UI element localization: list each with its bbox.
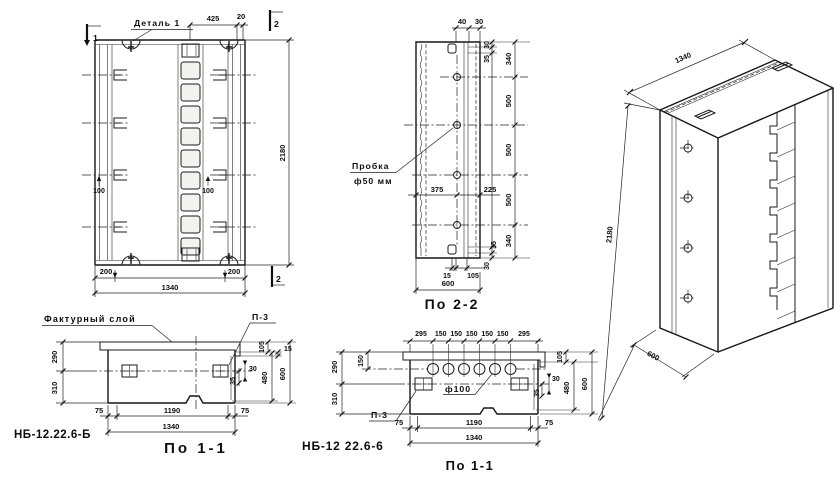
section-1-1-left-view: Фактурный слой П-3 290 310 105 15 30 35 … — [14, 312, 296, 457]
p3-label-left: П-3 — [252, 312, 269, 322]
plug-callout: Пробка ф50 мм — [350, 128, 453, 186]
p3-callout-mid: П-3 — [369, 391, 416, 421]
p3-label-mid: П-3 — [371, 410, 388, 420]
dim-150-4-label: 150 — [481, 331, 493, 338]
iso-plugs — [680, 140, 696, 306]
front-view: 100 100 Деталь 1 425 20 1 2 2 — [82, 10, 294, 297]
sec11M-bottom-dims: 75 1190 75 1340 — [395, 416, 553, 447]
dim-35r-top-label: 35 — [484, 55, 491, 63]
dim-35M-label: 35 — [534, 389, 541, 397]
iso-dims: 1340 2180 600 — [598, 39, 775, 421]
dim-500-1-label: 500 — [504, 95, 513, 108]
blueprint-page: 100 100 Деталь 1 425 20 1 2 2 — [0, 0, 834, 490]
dim-310M-label: 310 — [330, 393, 339, 406]
dim-clamp-left-label: 100 — [93, 188, 105, 195]
iso-dim-1340-label: 1340 — [674, 50, 693, 65]
sec11M-left-dims: 290 150 310 — [330, 350, 410, 417]
iso-serrated-groove — [770, 105, 795, 323]
sec11L-left-dims: 290 310 — [50, 340, 108, 406]
dim-1340M-label: 1340 — [466, 433, 483, 442]
section-mark-1-label: 1 — [93, 33, 99, 43]
embed-plate-left — [122, 365, 137, 377]
dim-30L-label: 30 — [249, 366, 257, 373]
front-bottom-dims: 200 200 1340 — [93, 265, 248, 297]
dim-75M-left-label: 75 — [395, 418, 403, 427]
dim-35L-label: 35 — [230, 377, 237, 385]
dim-600L-label: 600 — [278, 368, 287, 381]
embed-plate-right — [213, 365, 228, 377]
dim-1340-label: 1340 — [162, 283, 179, 292]
section-mark-2-top-label: 2 — [274, 19, 280, 29]
iso-dim-2180-label: 2180 — [604, 226, 614, 243]
void-ladder — [178, 45, 203, 261]
hole-diameter-label: ф100 — [445, 384, 471, 394]
dim-35r-bottom-label: 35 — [491, 241, 498, 249]
dim-1190L-label: 1190 — [164, 406, 180, 415]
embed-plate-left-mid — [415, 378, 432, 390]
sec11L-body — [88, 336, 252, 410]
dim-150-1-label: 150 — [435, 331, 447, 338]
sec11L-bottom-dims: 75 1190 75 1340 — [95, 405, 249, 436]
dim-105L-label: 105 — [259, 341, 266, 353]
dim-500-2-label: 500 — [504, 144, 513, 157]
sec11M-top-dims: 295 150 150 150 150 150 295 — [403, 331, 543, 352]
dim-1190M-label: 1190 — [466, 418, 482, 427]
dim-75M-right-label: 75 — [545, 418, 553, 427]
p3-callout-left: П-3 — [229, 312, 276, 365]
sec11M-right-dims: 105 30 35 480 600 — [534, 350, 598, 417]
plug-label-line1: Пробка — [352, 161, 389, 171]
dim-480L-label: 480 — [260, 372, 269, 385]
dim-225-label: 225 — [484, 185, 497, 194]
dim-30-top-label: 30 — [475, 17, 483, 26]
dim-105b-label: 105 — [467, 273, 479, 280]
dim-150-3-label: 150 — [466, 331, 478, 338]
dim-340-bottom-label: 340 — [504, 235, 513, 248]
front-top-dims: 425 20 — [188, 12, 249, 40]
dim-30M-label: 30 — [552, 376, 560, 383]
section-2-2-caption: По 2-2 — [425, 296, 480, 312]
dim-40-label: 40 — [458, 17, 466, 26]
front-height-dim: 2180 — [245, 38, 294, 268]
designation-left: НБ-12.22.6-Б — [14, 429, 91, 441]
facade-layer-label: Фактурный слой — [44, 314, 136, 324]
dim-clamp-right-label: 100 — [202, 188, 214, 195]
facade-layer-callout: Фактурный слой — [42, 314, 172, 342]
iso-dim-600-label: 600 — [646, 349, 661, 363]
sec11M-body — [362, 344, 552, 414]
dim-600-label: 600 — [442, 279, 455, 288]
section-mark-2-bottom-label: 2 — [276, 274, 282, 284]
dim-30r-bottom-label: 30 — [484, 262, 491, 270]
dim-600M-label: 600 — [580, 378, 589, 391]
section-mark-1: 1 — [84, 24, 101, 46]
dim-15L-label: 15 — [284, 346, 292, 353]
dim-2180-label: 2180 — [278, 145, 287, 162]
plug-label-line2: ф50 мм — [354, 176, 393, 186]
section-mark-2-top: 2 — [270, 10, 283, 31]
dim-75L-left-label: 75 — [95, 406, 103, 415]
section-2-2-view: Пробка ф50 мм 40 30 30 35 340 500 500 50… — [350, 17, 530, 312]
dim-150M-label: 150 — [358, 355, 365, 367]
detail-1-label: Деталь 1 — [134, 18, 180, 28]
section-1-1-left-caption: По 1-1 — [164, 440, 228, 457]
dim-425-label: 425 — [207, 14, 220, 23]
embed-plate-right-mid — [511, 378, 528, 390]
section-mark-2-bottom: 2 — [272, 266, 285, 287]
lifting-loops — [122, 40, 238, 265]
clamp-anchors: 100 100 — [82, 70, 258, 232]
dim-30r-top-label: 30 — [484, 41, 491, 49]
dim-1340L-label: 1340 — [163, 422, 180, 431]
dim-290M-label: 290 — [330, 361, 339, 374]
panel-outline — [95, 40, 245, 265]
dim-375-label: 375 — [431, 185, 444, 194]
section-1-1-mid-caption: По 1-1 — [446, 458, 495, 473]
section-1-1-mid-view: 295 150 150 150 150 150 295 ф100 П-3 290… — [302, 331, 598, 473]
dim-105M-label: 105 — [557, 351, 564, 363]
dim-200-right-label: 200 — [228, 267, 241, 276]
dim-150-5-label: 150 — [497, 331, 509, 338]
dim-310L-label: 310 — [50, 382, 59, 395]
top-slot — [182, 44, 199, 57]
dim-295-right-label: 295 — [518, 331, 530, 338]
dim-75L-right-label: 75 — [241, 406, 249, 415]
section-2-2-right-dims: 30 35 340 500 500 500 340 35 30 — [468, 40, 530, 270]
dim-150-2-label: 150 — [450, 331, 462, 338]
designation-mid: НБ-12 22.6-6 — [302, 439, 384, 453]
dim-20-label: 20 — [237, 12, 245, 21]
dim-480M-label: 480 — [562, 382, 571, 395]
section-2-2-bottom-dims: 15 105 600 По 2-2 — [414, 258, 485, 312]
iso-panel — [660, 60, 833, 352]
isometric-view: 1340 2180 600 — [598, 39, 833, 421]
section-2-2-top-dims: 40 30 — [452, 17, 486, 42]
dim-500-3-label: 500 — [504, 194, 513, 207]
dim-295-left-label: 295 — [415, 331, 427, 338]
technical-drawing-canvas: 100 100 Деталь 1 425 20 1 2 2 — [0, 0, 834, 490]
dim-340-top-label: 340 — [504, 53, 513, 66]
dim-290L-label: 290 — [50, 351, 59, 364]
dim-200-left-label: 200 — [100, 267, 113, 276]
detail-callout: Деталь 1 — [131, 18, 193, 41]
